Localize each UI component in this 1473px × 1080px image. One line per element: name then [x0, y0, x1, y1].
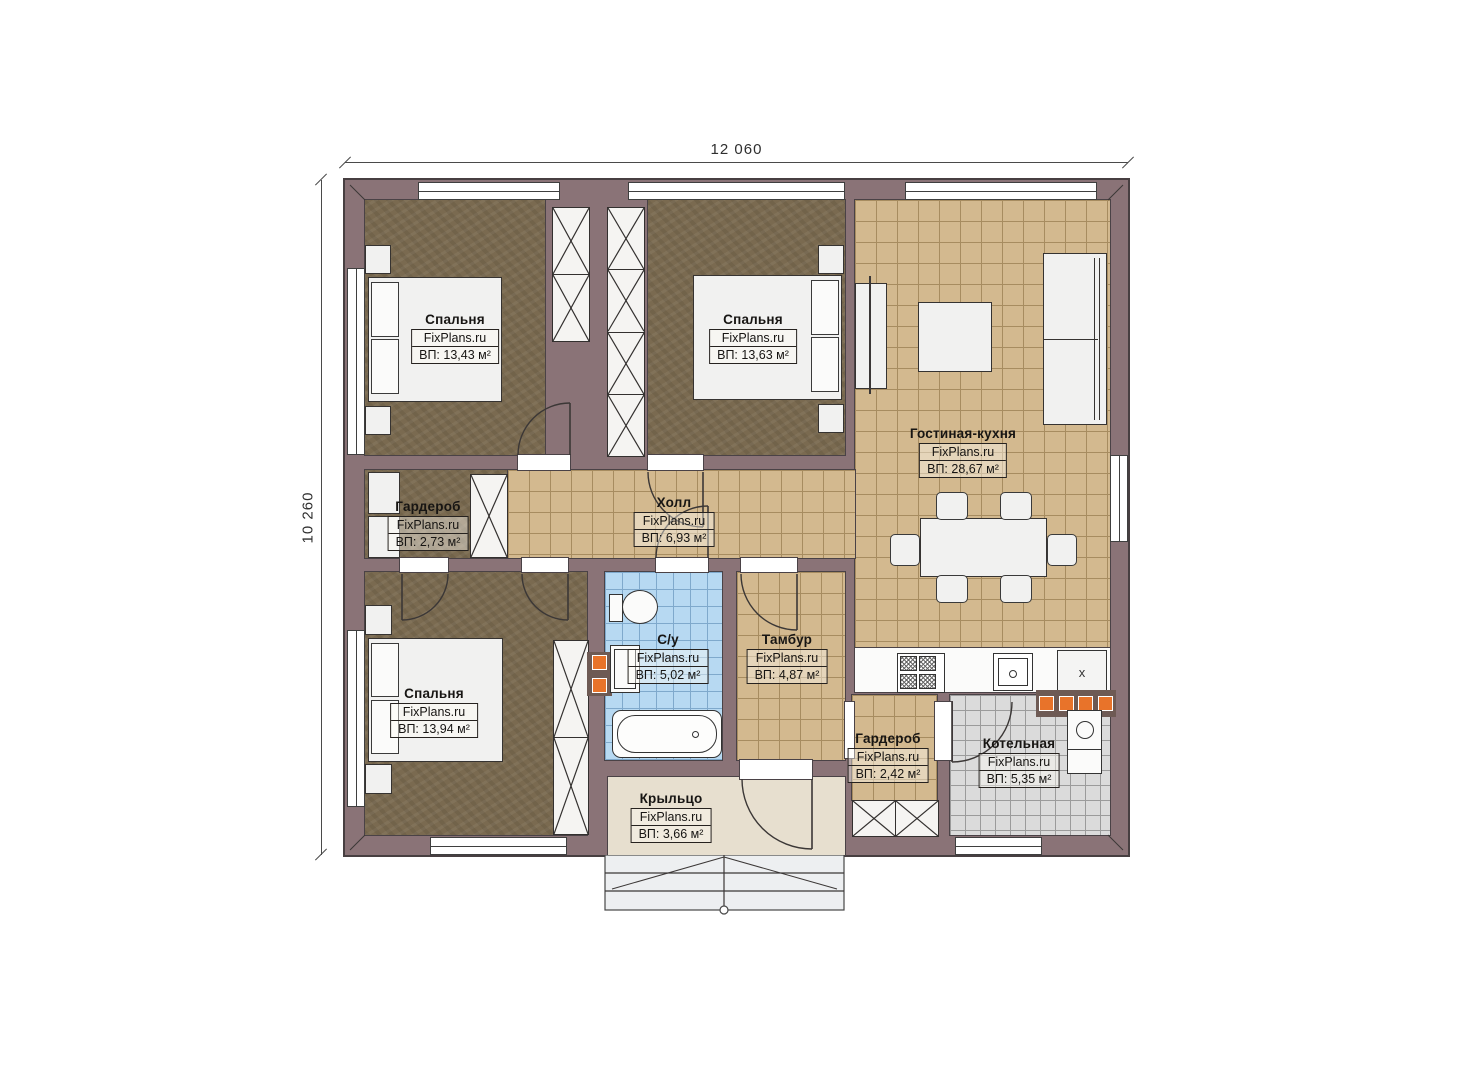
toilet-bowl	[622, 590, 658, 624]
closet-wardrobe-2	[852, 800, 939, 837]
floor-plan-page: 12 060 10 260	[0, 0, 1473, 1080]
vestibule-door-opening	[741, 558, 797, 572]
porch-steps	[604, 855, 846, 917]
room-label-bedroom-1: Спальня FixPlans.ru ВП: 13,43 м²	[411, 312, 499, 364]
pillow	[811, 280, 839, 335]
bedroom-3-hall-door-opening	[522, 558, 568, 572]
kitchen-unit-label: x	[1079, 665, 1086, 680]
window	[955, 837, 1042, 855]
chair	[890, 534, 920, 566]
nightstand	[365, 764, 392, 794]
room-area: ВП: 2,73 м²	[389, 533, 468, 550]
burner	[919, 674, 936, 689]
corner-hatch	[1108, 185, 1123, 200]
burner	[919, 656, 936, 671]
window	[347, 630, 365, 807]
room-area: ВП: 5,02 м²	[629, 666, 708, 683]
closet-bedroom-3	[553, 640, 589, 835]
sofa	[1043, 253, 1107, 425]
room-area: ВП: 6,93 м²	[635, 529, 714, 546]
nightstand	[818, 245, 844, 274]
bedroom-3-wardrobe-door-opening	[400, 558, 448, 572]
room-name: С/у	[628, 632, 709, 647]
burner	[900, 674, 917, 689]
room-label-bathroom: С/у FixPlans.ru ВП: 5,02 м²	[628, 632, 709, 684]
dining-table	[920, 518, 1047, 577]
dimension-height-label: 10 260	[300, 463, 317, 573]
brand-watermark: FixPlans.ru	[920, 444, 1006, 460]
brand-watermark: FixPlans.ru	[629, 650, 708, 666]
pillow	[371, 282, 399, 337]
brand-watermark: FixPlans.ru	[980, 754, 1059, 770]
bathtub	[612, 710, 722, 758]
burner	[900, 656, 917, 671]
window	[430, 837, 567, 855]
nightstand	[365, 406, 391, 435]
chair	[1000, 575, 1032, 603]
room-name: Гостиная-кухня	[910, 426, 1016, 441]
room-label-bedroom-2: Спальня FixPlans.ru ВП: 13,63 м²	[709, 312, 797, 364]
room-name: Спальня	[411, 312, 499, 327]
bathroom-door-opening	[656, 558, 708, 572]
room-name: Гардероб	[388, 499, 469, 514]
room-name: Котельная	[979, 736, 1060, 751]
room-name: Холл	[634, 495, 715, 510]
pillow	[371, 339, 399, 394]
window	[1110, 455, 1128, 542]
room-label-wardrobe-2: Гардероб FixPlans.ru ВП: 2,42 м²	[848, 731, 929, 783]
room-label-bedroom-3: Спальня FixPlans.ru ВП: 13,94 м²	[390, 686, 478, 738]
room-name: Тамбур	[747, 632, 828, 647]
brand-watermark: FixPlans.ru	[748, 650, 827, 666]
brand-watermark: FixPlans.ru	[849, 749, 928, 765]
corner-hatch	[350, 185, 365, 200]
coffee-table	[918, 302, 992, 372]
window	[347, 268, 365, 455]
room-name: Крыльцо	[631, 791, 712, 806]
boiler-unit	[1067, 710, 1102, 774]
corner-hatch	[350, 835, 365, 850]
window	[418, 182, 560, 200]
window	[628, 182, 845, 200]
closet-bedroom-2	[607, 207, 645, 457]
brand-watermark: FixPlans.ru	[710, 330, 796, 346]
chair	[1000, 492, 1032, 520]
window	[905, 182, 1097, 200]
nightstand	[365, 605, 392, 635]
closet-wardrobe-1	[470, 474, 508, 558]
room-label-wardrobe-1: Гардероб FixPlans.ru ВП: 2,73 м²	[388, 499, 469, 551]
kitchen-unit: x	[1057, 650, 1107, 694]
boiler-door-opening	[935, 702, 952, 760]
brand-watermark: FixPlans.ru	[391, 704, 477, 720]
toilet-tank	[609, 594, 623, 622]
bedroom-1-door-opening	[518, 455, 570, 470]
pillow	[811, 337, 839, 392]
room-area: ВП: 13,43 м²	[412, 346, 498, 363]
corner-hatch	[1108, 835, 1123, 850]
brand-watermark: FixPlans.ru	[635, 513, 714, 529]
chair	[936, 575, 968, 603]
room-label-hall: Холл FixPlans.ru ВП: 6,93 м²	[634, 495, 715, 547]
radiator-accent-pair	[587, 652, 612, 696]
nightstand	[818, 404, 844, 433]
chair	[936, 492, 968, 520]
dimension-height-line	[321, 180, 322, 855]
room-area: ВП: 2,42 м²	[849, 765, 928, 782]
room-area: ВП: 13,63 м²	[710, 346, 796, 363]
room-name: Спальня	[390, 686, 478, 701]
tv-unit	[855, 283, 887, 389]
brand-watermark: FixPlans.ru	[412, 330, 498, 346]
brand-watermark: FixPlans.ru	[632, 809, 711, 825]
room-area: ВП: 3,66 м²	[632, 825, 711, 842]
brand-watermark: FixPlans.ru	[389, 517, 468, 533]
kitchen-sink	[993, 653, 1033, 691]
closet-bedroom-1	[552, 207, 590, 342]
room-area: ВП: 28,67 м²	[920, 460, 1006, 477]
front-door-opening	[740, 760, 812, 779]
room-label-porch: Крыльцо FixPlans.ru ВП: 3,66 м²	[631, 791, 712, 843]
room-name: Спальня	[709, 312, 797, 327]
stove	[897, 653, 945, 693]
room-label-vestibule: Тамбур FixPlans.ru ВП: 4,87 м²	[747, 632, 828, 684]
room-label-living-kitchen: Гостиная-кухня FixPlans.ru ВП: 28,67 м²	[910, 426, 1016, 478]
dimension-width-label: 12 060	[345, 141, 1128, 158]
room-area: ВП: 5,35 м²	[980, 770, 1059, 787]
room-label-boiler-room: Котельная FixPlans.ru ВП: 5,35 м²	[979, 736, 1060, 788]
room-area: ВП: 4,87 м²	[748, 666, 827, 683]
room-area: ВП: 13,94 м²	[391, 720, 477, 737]
chair	[1047, 534, 1077, 566]
nightstand	[365, 245, 391, 274]
dimension-width-line	[345, 162, 1128, 163]
bedroom-2-door-opening	[648, 455, 703, 470]
room-name: Гардероб	[848, 731, 929, 746]
